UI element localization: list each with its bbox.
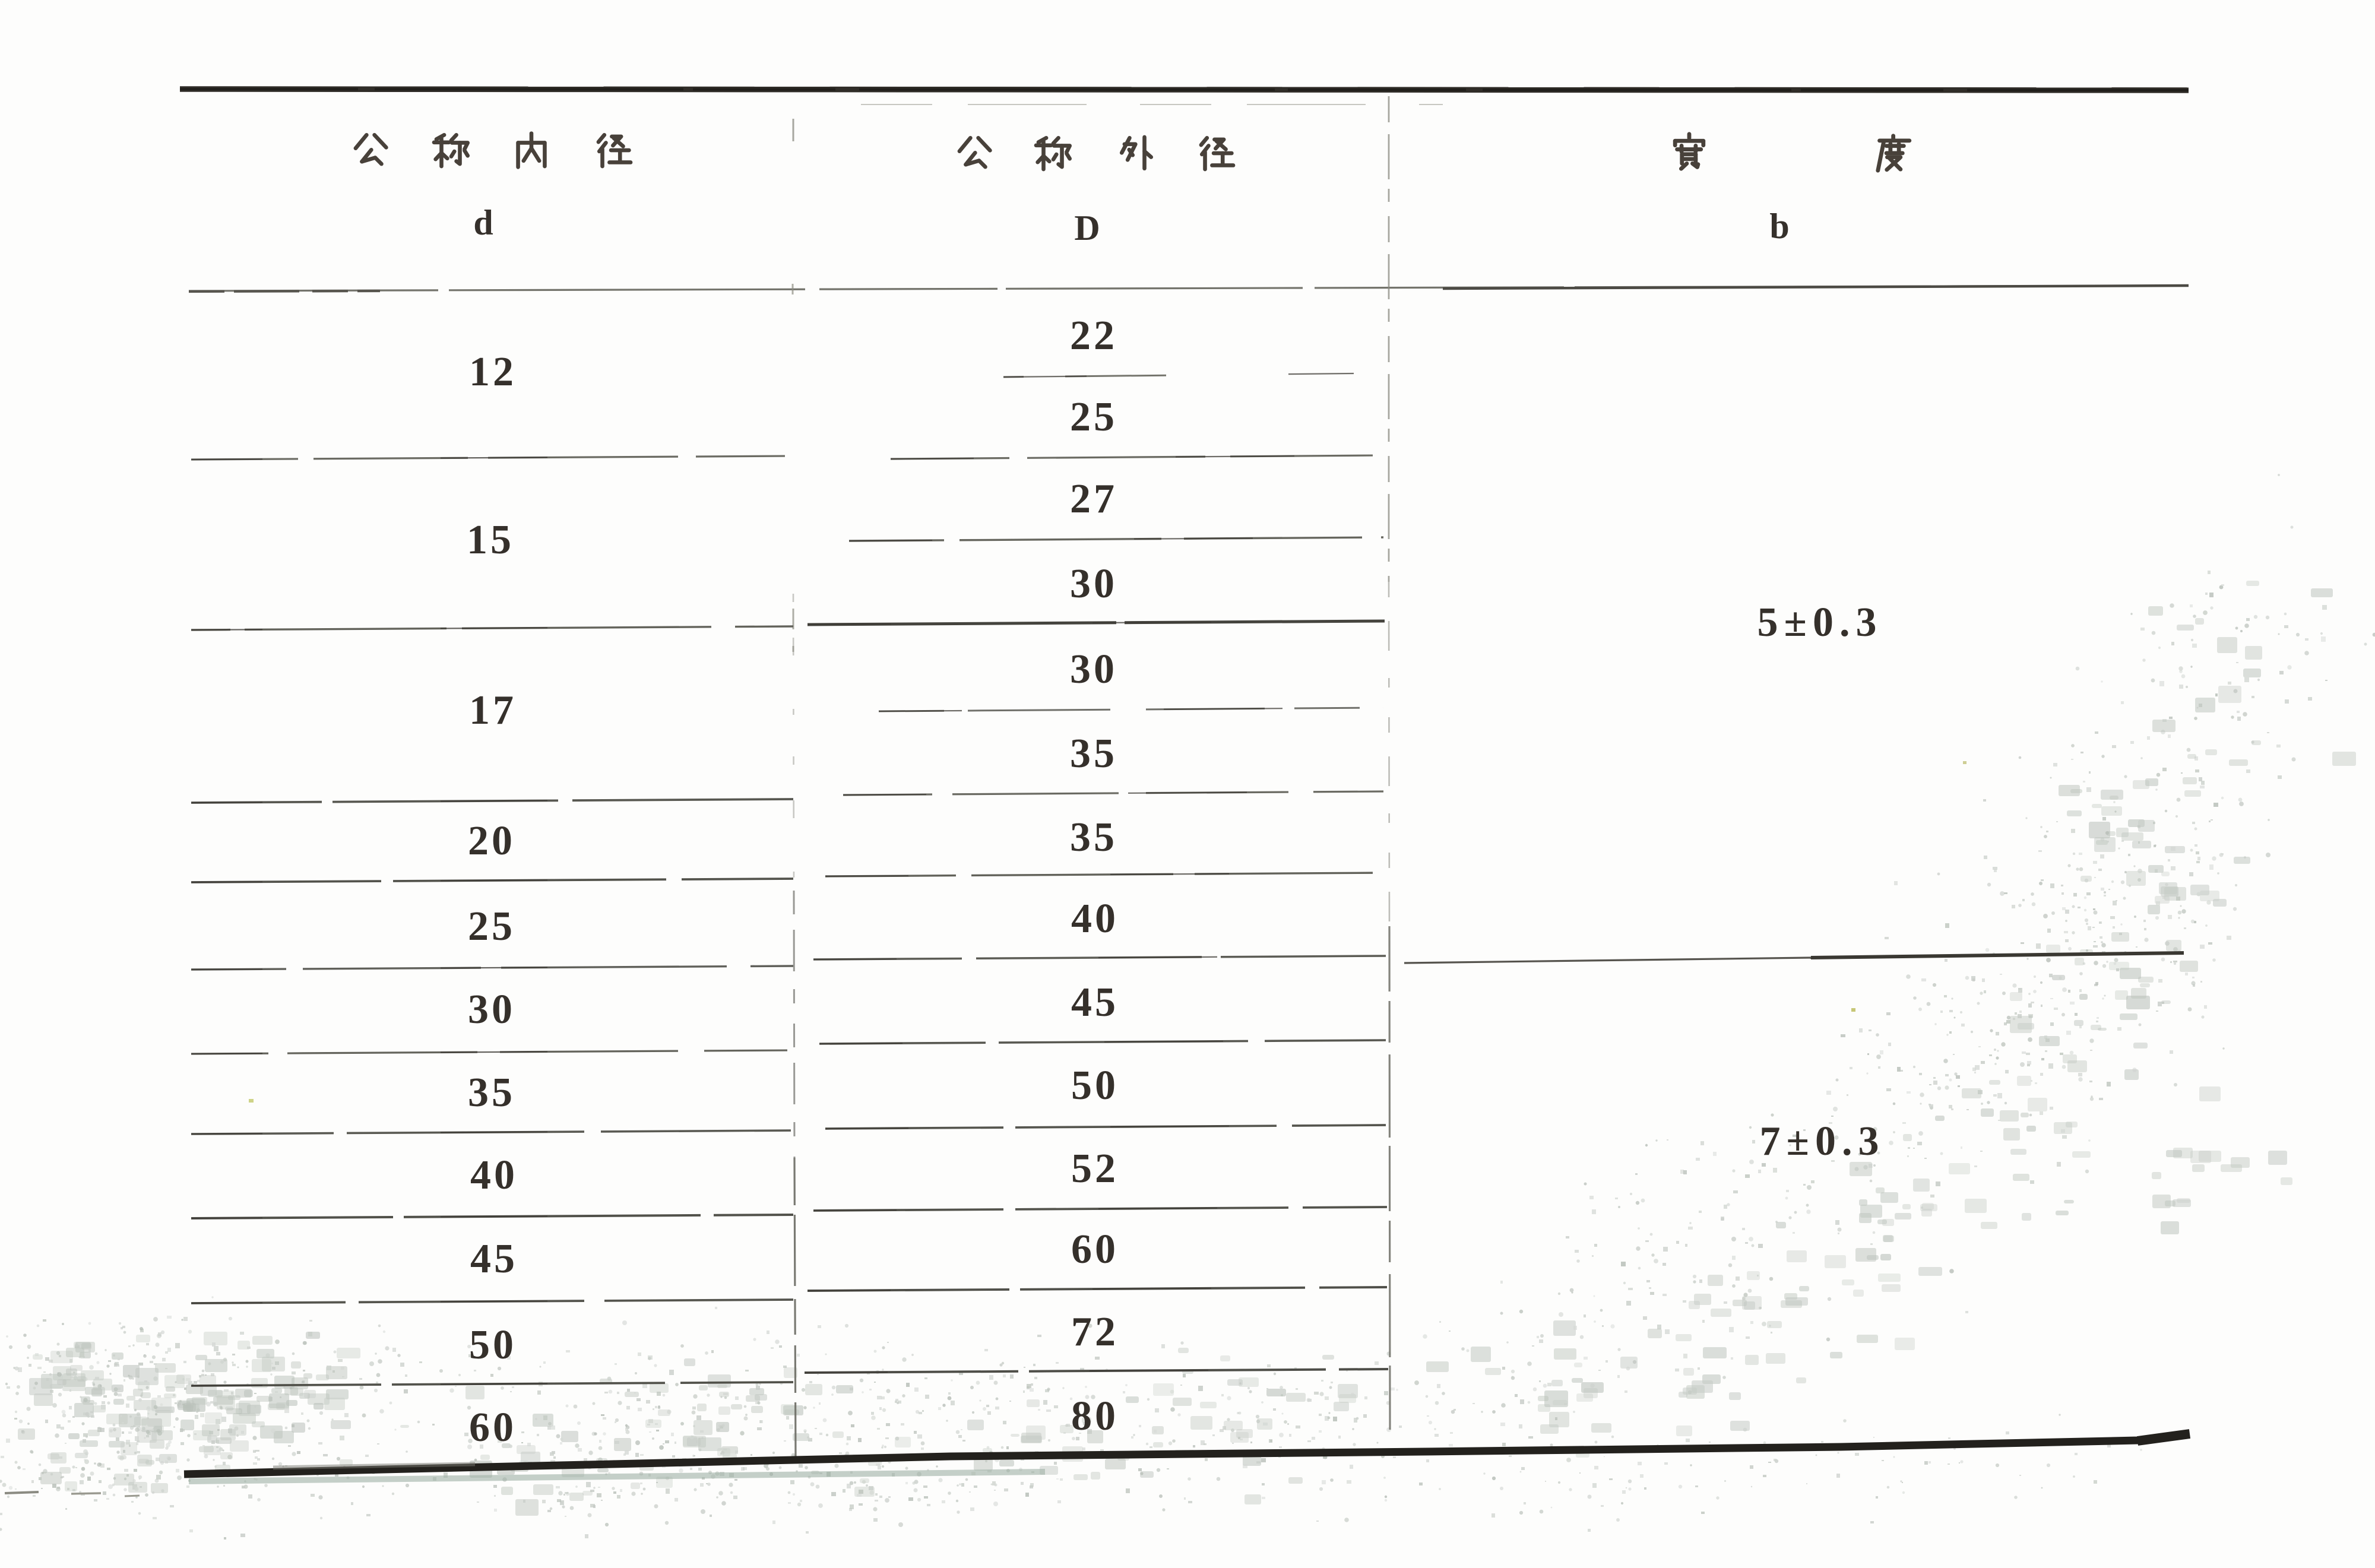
svg-text:20: 20 [468,818,515,864]
svg-text:D: D [1074,208,1100,248]
svg-text:72: 72 [1071,1309,1119,1355]
svg-text:30: 30 [1070,561,1117,607]
svg-text:17: 17 [469,688,517,733]
svg-text:22: 22 [1070,313,1117,359]
svg-text:25: 25 [1070,394,1117,440]
svg-text:40: 40 [1071,896,1119,942]
svg-text:25: 25 [468,904,515,949]
svg-text:35: 35 [1070,815,1117,860]
svg-text:50: 50 [469,1322,517,1368]
svg-text:52: 52 [1071,1146,1119,1192]
svg-text:80: 80 [1071,1393,1119,1439]
svg-text:60: 60 [1071,1227,1119,1272]
svg-text:60: 60 [469,1405,517,1450]
svg-text:40: 40 [470,1152,518,1198]
svg-text:27: 27 [1070,476,1117,522]
svg-text:5±0.3: 5±0.3 [1757,600,1883,645]
svg-text:30: 30 [1070,647,1117,692]
svg-text:50: 50 [1071,1063,1119,1108]
svg-text:b: b [1769,207,1789,246]
svg-text:12: 12 [469,349,517,395]
svg-text:35: 35 [1070,731,1117,777]
svg-text:35: 35 [468,1070,515,1116]
svg-text:7±0.3: 7±0.3 [1760,1119,1885,1164]
svg-text:30: 30 [468,987,515,1032]
svg-text:45: 45 [470,1236,518,1282]
svg-text:45: 45 [1071,980,1119,1025]
svg-text:d: d [473,203,493,242]
svg-text:15: 15 [467,517,514,563]
